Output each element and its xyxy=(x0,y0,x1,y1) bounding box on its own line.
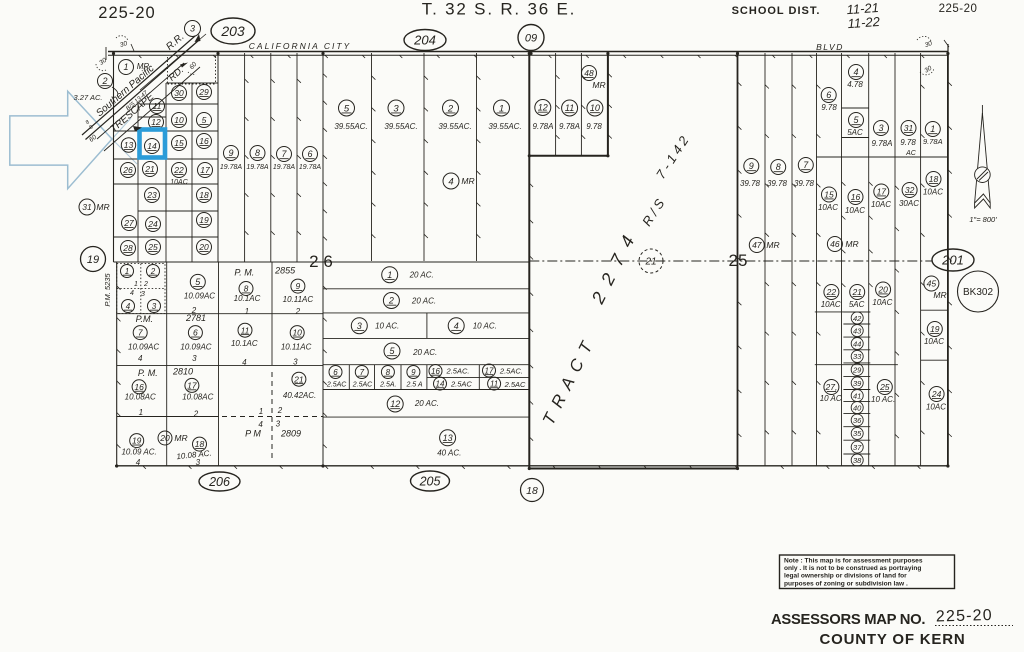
svg-text:10AC: 10AC xyxy=(845,206,865,215)
svg-text:1: 1 xyxy=(387,270,392,280)
svg-text:44: 44 xyxy=(853,339,861,348)
svg-text:10.09AC: 10.09AC xyxy=(128,342,159,351)
svg-text:10: 10 xyxy=(590,103,600,113)
svg-text:10 AC: 10 AC xyxy=(820,394,842,403)
svg-text:purposes of zoning or subdivis: purposes of zoning or subdivision law . xyxy=(784,580,908,587)
svg-text:20 AC.: 20 AC. xyxy=(414,399,439,408)
svg-text:16: 16 xyxy=(199,136,209,146)
svg-text:26: 26 xyxy=(122,165,133,175)
svg-text:9.78: 9.78 xyxy=(586,122,602,131)
svg-text:2.5AC: 2.5AC xyxy=(504,380,526,389)
svg-text:17: 17 xyxy=(200,165,210,175)
svg-text:10.11AC: 10.11AC xyxy=(283,295,314,304)
svg-text:1″= 800′: 1″= 800′ xyxy=(969,215,997,224)
svg-text:9: 9 xyxy=(228,148,233,158)
svg-text:4: 4 xyxy=(130,290,134,297)
svg-text:30: 30 xyxy=(174,88,184,98)
svg-text:3: 3 xyxy=(293,357,298,366)
svg-text:8: 8 xyxy=(386,368,391,377)
svg-text:17: 17 xyxy=(877,187,887,197)
svg-text:41: 41 xyxy=(853,391,861,400)
svg-text:9.78: 9.78 xyxy=(821,103,837,112)
svg-text:38: 38 xyxy=(853,456,862,465)
svg-text:10.1AC: 10.1AC xyxy=(234,294,261,303)
svg-text:2: 2 xyxy=(388,296,394,306)
svg-text:25: 25 xyxy=(147,242,158,252)
svg-text:11-22: 11-22 xyxy=(847,14,881,31)
svg-text:P. M.: P. M. xyxy=(138,368,158,378)
svg-text:10AC: 10AC xyxy=(923,188,943,197)
svg-text:10.1AC: 10.1AC xyxy=(231,339,258,348)
svg-text:19: 19 xyxy=(87,254,99,266)
svg-text:10 AC.: 10 AC. xyxy=(375,322,399,331)
svg-text:5: 5 xyxy=(202,115,207,125)
svg-text:12: 12 xyxy=(151,117,161,127)
svg-text:10: 10 xyxy=(292,328,302,338)
svg-text:9: 9 xyxy=(749,161,754,171)
svg-text:2855: 2855 xyxy=(274,266,296,276)
svg-text:20 AC.: 20 AC. xyxy=(409,271,434,280)
svg-text:MR: MR xyxy=(845,239,858,249)
svg-text:10.09AC: 10.09AC xyxy=(180,342,211,351)
svg-text:5AC: 5AC xyxy=(847,128,863,137)
svg-text:15: 15 xyxy=(824,190,834,200)
svg-text:P M: P M xyxy=(245,429,261,439)
svg-text:225-20: 225-20 xyxy=(98,4,155,22)
svg-text:17: 17 xyxy=(187,380,197,390)
svg-text:14: 14 xyxy=(436,379,445,388)
svg-text:21: 21 xyxy=(144,164,155,174)
svg-text:1: 1 xyxy=(245,307,249,316)
svg-text:8: 8 xyxy=(244,284,249,294)
svg-text:3.27 AC.: 3.27 AC. xyxy=(74,93,103,102)
svg-text:204: 204 xyxy=(413,33,436,48)
svg-text:39.78: 39.78 xyxy=(740,179,761,188)
svg-text:3: 3 xyxy=(276,419,281,428)
svg-text:BLVD: BLVD xyxy=(816,42,844,52)
svg-text:20: 20 xyxy=(877,285,888,295)
svg-text:39.55AC.: 39.55AC. xyxy=(488,122,521,131)
svg-text:3: 3 xyxy=(152,302,157,311)
svg-text:BK302: BK302 xyxy=(963,287,993,298)
svg-text:10.09AC: 10.09AC xyxy=(184,291,215,300)
svg-text:18: 18 xyxy=(195,439,205,449)
svg-text:31: 31 xyxy=(904,123,914,133)
svg-text:2: 2 xyxy=(101,76,107,86)
svg-text:6: 6 xyxy=(826,90,831,100)
svg-text:24: 24 xyxy=(147,219,158,229)
svg-text:16: 16 xyxy=(134,382,144,392)
svg-text:10AC: 10AC xyxy=(926,403,946,412)
svg-text:8: 8 xyxy=(255,148,260,158)
svg-text:9: 9 xyxy=(411,368,416,377)
svg-text:MR: MR xyxy=(137,62,150,71)
svg-text:22: 22 xyxy=(173,165,184,175)
svg-text:2.5AC.: 2.5AC. xyxy=(446,367,470,376)
svg-text:21: 21 xyxy=(293,374,304,384)
svg-text:39: 39 xyxy=(853,379,862,388)
svg-text:30AC: 30AC xyxy=(899,199,919,208)
svg-text:206: 206 xyxy=(208,475,230,489)
svg-text:2: 2 xyxy=(295,307,301,316)
svg-text:10AC: 10AC xyxy=(924,337,944,346)
svg-text:3: 3 xyxy=(141,291,145,298)
svg-text:42: 42 xyxy=(853,314,862,323)
svg-text:6: 6 xyxy=(333,368,338,377)
svg-text:MR: MR xyxy=(933,290,946,300)
svg-text:203: 203 xyxy=(220,23,245,39)
svg-text:P.M.: P.M. xyxy=(136,314,153,324)
svg-text:25: 25 xyxy=(729,251,748,270)
svg-text:18: 18 xyxy=(199,190,209,200)
svg-text:45: 45 xyxy=(927,279,937,289)
svg-text:1: 1 xyxy=(123,62,128,72)
svg-text:22: 22 xyxy=(826,287,837,297)
svg-text:MR: MR xyxy=(461,176,474,186)
svg-text:1: 1 xyxy=(134,281,138,288)
svg-text:2781: 2781 xyxy=(185,313,206,323)
svg-text:23: 23 xyxy=(146,190,157,200)
svg-text:33: 33 xyxy=(853,352,862,361)
svg-text:2.5AC.: 2.5AC. xyxy=(499,367,523,376)
svg-text:4: 4 xyxy=(126,302,131,311)
svg-text:2.5A.: 2.5A. xyxy=(379,382,396,389)
svg-text:27,: 27, xyxy=(824,382,837,392)
svg-text:6: 6 xyxy=(193,328,198,338)
svg-text:18: 18 xyxy=(929,174,939,184)
svg-text:10AC: 10AC xyxy=(872,298,892,307)
svg-text:5AC: 5AC xyxy=(849,300,865,309)
svg-text:3: 3 xyxy=(190,24,195,34)
svg-text:10AC: 10AC xyxy=(871,200,891,209)
svg-text:46: 46 xyxy=(830,239,840,249)
svg-text:P. M.: P. M. xyxy=(234,267,254,277)
svg-text:19.78A: 19.78A xyxy=(220,164,243,171)
svg-text:37: 37 xyxy=(853,443,862,452)
svg-text:2: 2 xyxy=(277,406,283,415)
svg-text:14: 14 xyxy=(147,141,157,151)
svg-text:2: 2 xyxy=(143,281,148,288)
svg-text:legal ownership or divisions o: legal ownership or divisions of land for xyxy=(784,573,907,580)
svg-text:3: 3 xyxy=(357,321,362,331)
svg-text:10.09 AC.: 10.09 AC. xyxy=(121,448,156,457)
svg-text:16: 16 xyxy=(431,367,440,376)
svg-text:40.42AC.: 40.42AC. xyxy=(283,391,316,400)
svg-text:9.78A: 9.78A xyxy=(872,139,893,148)
svg-text:225-20: 225-20 xyxy=(936,607,993,625)
svg-text:40 AC.: 40 AC. xyxy=(437,449,461,458)
svg-text:13: 13 xyxy=(443,433,453,443)
svg-text:MR: MR xyxy=(174,433,187,443)
svg-text:21: 21 xyxy=(851,287,862,297)
svg-text:6: 6 xyxy=(307,149,312,159)
svg-text:4: 4 xyxy=(138,354,143,363)
svg-text:10 AC.: 10 AC. xyxy=(871,395,895,404)
svg-text:31: 31 xyxy=(82,202,92,212)
svg-text:10.08AC: 10.08AC xyxy=(182,393,213,402)
svg-text:35: 35 xyxy=(853,429,862,438)
svg-text:9: 9 xyxy=(296,281,301,291)
svg-text:15: 15 xyxy=(174,138,184,148)
svg-text:MR: MR xyxy=(96,202,109,212)
svg-text:16: 16 xyxy=(851,192,861,202)
svg-text:36: 36 xyxy=(853,416,862,425)
svg-text:43: 43 xyxy=(853,326,862,335)
svg-text:ASSESSORS MAP NO.: ASSESSORS MAP NO. xyxy=(771,612,925,628)
svg-text:3: 3 xyxy=(878,123,883,133)
svg-text:2810: 2810 xyxy=(172,367,193,377)
svg-text:19.78A: 19.78A xyxy=(273,164,296,171)
svg-text:12: 12 xyxy=(538,103,548,113)
svg-text:20 AC.: 20 AC. xyxy=(411,297,436,306)
svg-text:COUNTY OF KERN: COUNTY OF KERN xyxy=(820,631,966,648)
svg-text:17: 17 xyxy=(485,366,494,375)
svg-text:MR: MR xyxy=(766,240,779,250)
svg-text:24: 24 xyxy=(931,389,942,399)
svg-text:25: 25 xyxy=(879,382,890,392)
svg-text:10: 10 xyxy=(174,115,184,125)
svg-text:10.08AC: 10.08AC xyxy=(125,393,156,402)
svg-text:47: 47 xyxy=(752,240,762,250)
svg-text:19.78A: 19.78A xyxy=(299,164,322,171)
svg-text:19: 19 xyxy=(132,436,142,446)
svg-text:10 AC.: 10 AC. xyxy=(473,322,497,331)
svg-text:4: 4 xyxy=(454,321,459,331)
svg-text:13: 13 xyxy=(124,140,134,150)
svg-text:10AC: 10AC xyxy=(170,179,188,186)
svg-text:7: 7 xyxy=(360,368,365,377)
svg-text:9.78: 9.78 xyxy=(900,138,916,147)
svg-text:4.78: 4.78 xyxy=(847,80,863,89)
svg-text:4: 4 xyxy=(258,420,263,429)
svg-text:40: 40 xyxy=(853,403,862,412)
svg-text:10AC: 10AC xyxy=(821,300,841,309)
svg-text:T. 32 S. R. 36 E.: T. 32 S. R. 36 E. xyxy=(422,0,576,19)
svg-text:9.78A: 9.78A xyxy=(533,122,554,131)
svg-text:11: 11 xyxy=(565,103,574,113)
svg-text:AC: AC xyxy=(905,150,917,157)
svg-text:1: 1 xyxy=(125,267,129,276)
svg-text:21: 21 xyxy=(644,257,656,268)
svg-text:28: 28 xyxy=(122,243,133,253)
svg-text:39.78: 39.78 xyxy=(794,179,815,188)
svg-text:2.5AC: 2.5AC xyxy=(352,382,373,389)
svg-text:only . It is not to be constr: only . It is not to be construed as port… xyxy=(784,565,921,572)
svg-text:2: 2 xyxy=(150,267,156,276)
svg-text:2.5 A: 2.5 A xyxy=(405,382,422,389)
svg-text:3: 3 xyxy=(192,354,197,363)
svg-text:48: 48 xyxy=(584,68,594,78)
svg-text:20: 20 xyxy=(198,242,209,252)
svg-text:4: 4 xyxy=(242,358,247,367)
svg-text:12: 12 xyxy=(390,399,400,409)
svg-text:2809: 2809 xyxy=(280,429,301,439)
svg-text:4: 4 xyxy=(853,67,858,77)
svg-text:201: 201 xyxy=(941,253,964,268)
svg-text:SCHOOL DIST.: SCHOOL DIST. xyxy=(732,5,821,17)
svg-text:MR: MR xyxy=(592,80,605,90)
svg-text:Note : This map is for assess: Note : This map is for assessment purpos… xyxy=(784,558,923,565)
svg-text:39.55AC.: 39.55AC. xyxy=(334,122,367,131)
svg-text:225-20: 225-20 xyxy=(939,3,978,15)
svg-text:2: 2 xyxy=(193,410,199,419)
svg-text:9.78A: 9.78A xyxy=(559,122,580,131)
svg-text:19: 19 xyxy=(930,324,940,334)
svg-text:8: 8 xyxy=(776,162,781,172)
svg-text:1: 1 xyxy=(139,408,143,417)
svg-text:11: 11 xyxy=(241,325,250,335)
svg-text:39.78: 39.78 xyxy=(767,179,788,188)
svg-text:20 AC.: 20 AC. xyxy=(412,348,437,357)
svg-text:4: 4 xyxy=(448,176,453,187)
svg-text:1: 1 xyxy=(930,124,935,134)
svg-text:39.55AC.: 39.55AC. xyxy=(438,122,471,131)
svg-text:205: 205 xyxy=(419,474,441,488)
svg-text:19.78A: 19.78A xyxy=(246,164,269,171)
svg-text:P.M. 5235: P.M. 5235 xyxy=(103,273,112,307)
svg-text:39.55AC.: 39.55AC. xyxy=(384,122,417,131)
svg-text:27: 27 xyxy=(123,218,134,228)
svg-text:9.78A: 9.78A xyxy=(923,137,943,146)
svg-text:1: 1 xyxy=(259,407,263,416)
svg-text:10AC: 10AC xyxy=(818,203,838,212)
svg-text:11: 11 xyxy=(490,379,498,388)
svg-text:2.5AC: 2.5AC xyxy=(326,382,347,389)
svg-text:32: 32 xyxy=(905,185,915,195)
svg-text:29: 29 xyxy=(852,365,862,374)
svg-text:09: 09 xyxy=(525,32,537,44)
svg-text:20: 20 xyxy=(159,433,170,443)
svg-text:29: 29 xyxy=(198,87,209,97)
svg-text:18: 18 xyxy=(526,485,538,497)
svg-text:19: 19 xyxy=(199,215,209,225)
svg-text:CALIFORNIA CITY: CALIFORNIA CITY xyxy=(249,41,351,51)
svg-text:2.5AC: 2.5AC xyxy=(450,380,472,389)
svg-text:7: 7 xyxy=(138,328,143,338)
svg-text:11: 11 xyxy=(153,101,162,111)
svg-text:10.11AC: 10.11AC xyxy=(281,342,312,351)
